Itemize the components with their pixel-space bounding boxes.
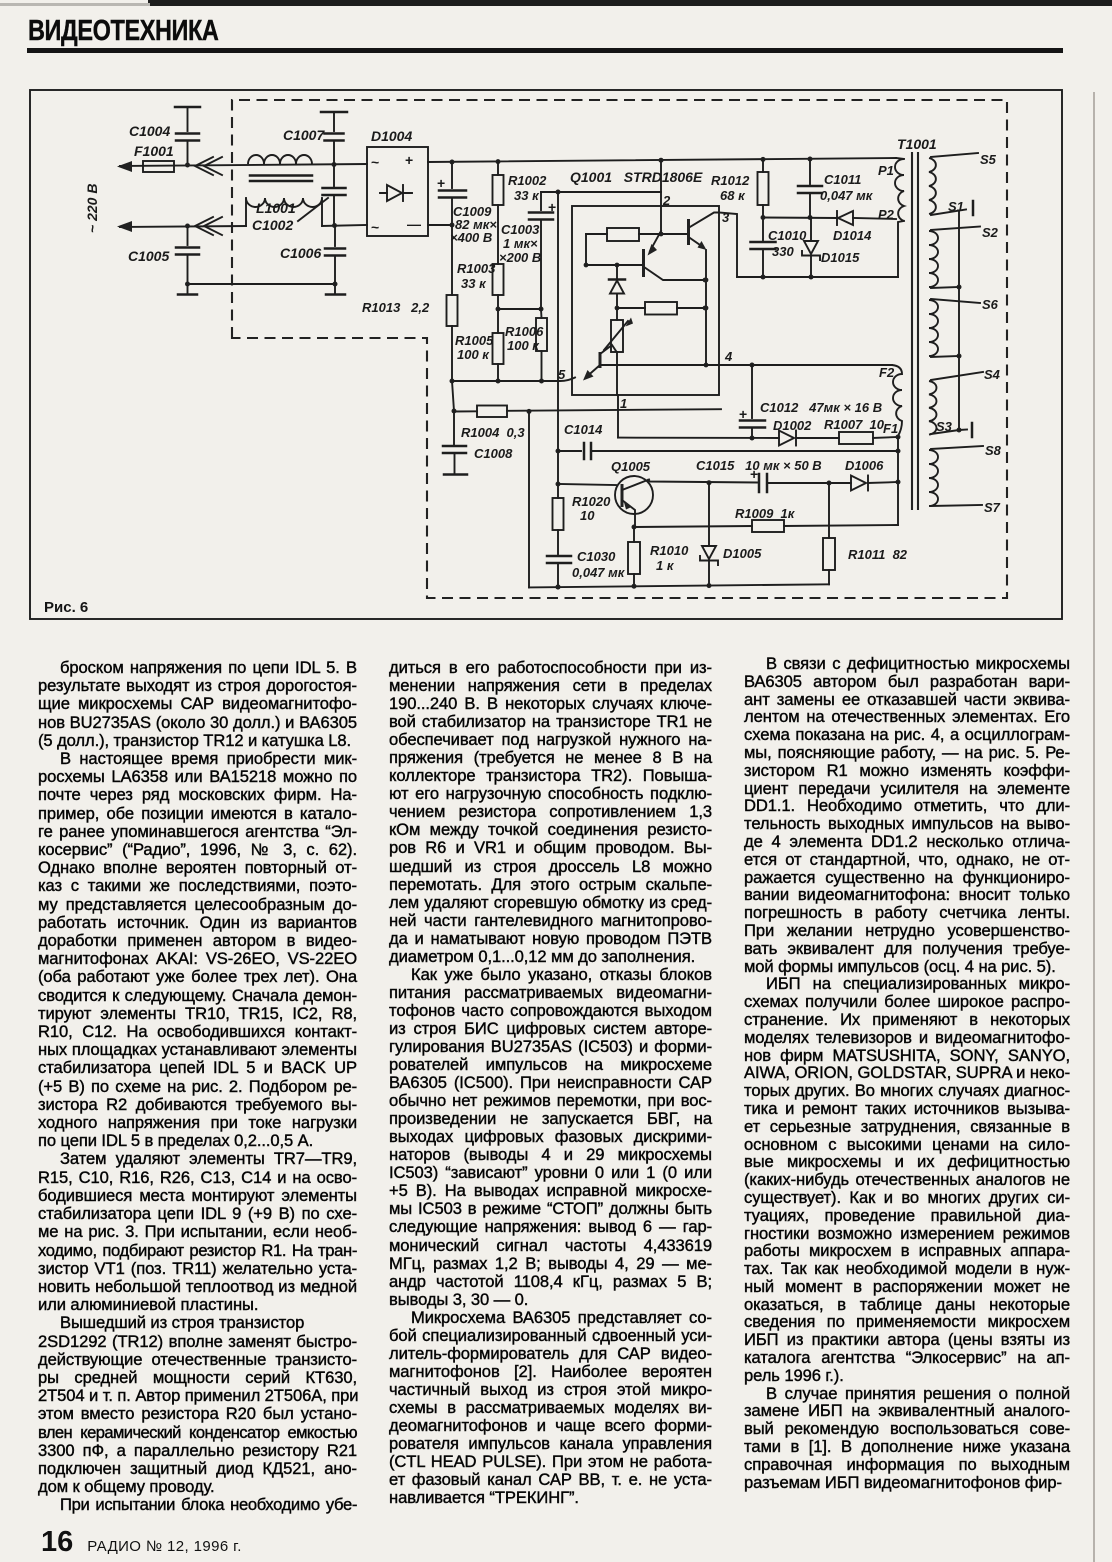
svg-text:1: 1 [620, 396, 627, 411]
svg-text:×200 В: ×200 В [499, 250, 541, 265]
svg-text:R1002: R1002 [508, 173, 547, 188]
svg-text:33 к: 33 к [461, 276, 487, 291]
svg-text:1 мк×: 1 мк× [503, 236, 538, 251]
svg-text:S2: S2 [982, 225, 999, 240]
svg-text:1 к: 1 к [656, 558, 675, 573]
svg-text:R1007 10: R1007 10 [824, 417, 885, 432]
svg-text:R1012: R1012 [711, 173, 750, 188]
svg-text:S4: S4 [984, 367, 1001, 382]
svg-text:C1014: C1014 [564, 422, 603, 437]
svg-text:S6: S6 [982, 297, 999, 312]
svg-text:0,047 мк: 0,047 мк [820, 188, 874, 203]
svg-text:C1003: C1003 [501, 222, 540, 237]
svg-text:33 к: 33 к [514, 188, 540, 203]
svg-text:0,047 мк: 0,047 мк [572, 565, 626, 580]
svg-text:R1005: R1005 [455, 333, 494, 348]
svg-text:3: 3 [722, 210, 730, 225]
svg-text:R1006: R1006 [505, 324, 544, 339]
svg-text:F2: F2 [879, 365, 895, 380]
svg-text:100 к: 100 к [457, 347, 490, 362]
svg-text:D1015: D1015 [821, 250, 860, 265]
svg-text:5: 5 [558, 367, 566, 382]
svg-text:D1014: D1014 [833, 228, 872, 243]
svg-text:D1002: D1002 [773, 418, 812, 433]
svg-text:C1011: C1011 [824, 172, 861, 187]
svg-text:C1012 47мк × 16 В: C1012 47мк × 16 В [760, 400, 882, 415]
svg-text:R1003: R1003 [457, 261, 496, 276]
svg-text:R1020: R1020 [572, 494, 611, 509]
svg-text:D1006: D1006 [845, 458, 884, 473]
svg-text:T1001: T1001 [897, 136, 937, 152]
svg-text:100 к: 100 к [507, 338, 540, 353]
svg-text:D1004: D1004 [371, 128, 412, 144]
svg-text:—: — [407, 216, 421, 232]
svg-text:L1001: L1001 [256, 200, 296, 216]
svg-text:C1005: C1005 [128, 248, 169, 264]
svg-text:~ 220 В: ~ 220 В [84, 184, 100, 233]
svg-text:S1: S1 [948, 199, 964, 214]
svg-text:R1010: R1010 [650, 543, 689, 558]
svg-text:F1: F1 [883, 421, 898, 436]
svg-text:~: ~ [371, 154, 379, 170]
svg-text:C1004: C1004 [129, 123, 170, 139]
svg-text:R1011 82: R1011 82 [848, 547, 908, 562]
svg-text:C1015 10 мк × 50 В: C1015 10 мк × 50 В [696, 458, 822, 473]
svg-text:S8: S8 [985, 443, 1002, 458]
svg-text:Рис. 6: Рис. 6 [44, 599, 88, 616]
svg-text:P1: P1 [878, 163, 894, 178]
svg-text:10: 10 [580, 508, 595, 523]
svg-text:D1005: D1005 [723, 546, 762, 561]
svg-text:330: 330 [772, 244, 794, 259]
svg-text:×400 В: ×400 В [450, 230, 492, 245]
svg-text:S7: S7 [984, 500, 1001, 515]
svg-text:Q1005: Q1005 [611, 459, 651, 474]
svg-text:S5: S5 [980, 152, 997, 167]
svg-text:C1010: C1010 [768, 228, 807, 243]
svg-text:4: 4 [724, 349, 733, 364]
svg-text:S3: S3 [936, 419, 953, 434]
svg-text:+: + [437, 175, 445, 191]
svg-text:F1001: F1001 [134, 143, 174, 159]
svg-text:68 к: 68 к [720, 188, 746, 203]
svg-text:~: ~ [371, 219, 379, 235]
svg-text:R1004 0,3: R1004 0,3 [461, 425, 525, 440]
svg-text:Q1001 STRD1806E: Q1001 STRD1806E [570, 169, 703, 185]
svg-text:C1007: C1007 [283, 127, 325, 143]
svg-text:+: + [405, 152, 413, 168]
svg-text:C1006: C1006 [280, 245, 321, 261]
svg-text:C1002: C1002 [252, 217, 293, 233]
svg-text:R1013 2,2: R1013 2,2 [362, 300, 430, 315]
svg-text:P2: P2 [878, 207, 895, 222]
svg-text:C1008: C1008 [474, 446, 513, 461]
svg-text:C1030: C1030 [577, 549, 616, 564]
svg-text:R1009 1к: R1009 1к [735, 506, 796, 521]
svg-text:+: + [548, 199, 556, 215]
